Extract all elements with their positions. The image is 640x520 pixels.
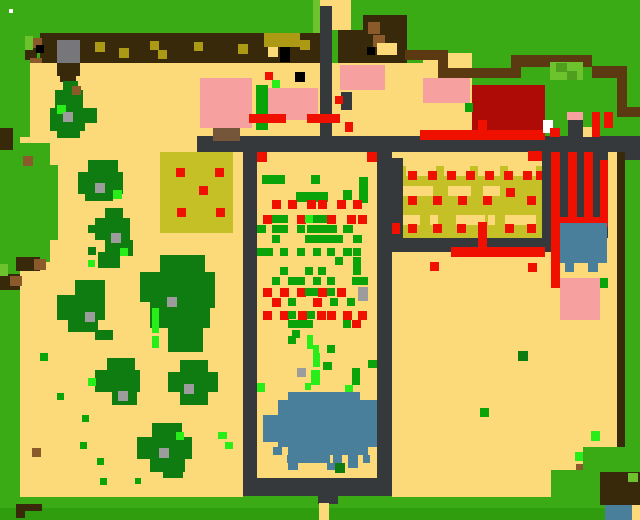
crop (272, 235, 280, 243)
field-dot (215, 168, 224, 177)
trough (560, 223, 607, 263)
sprout (600, 278, 608, 288)
crop (353, 267, 361, 275)
sprout-glow (218, 432, 227, 439)
stone (297, 368, 306, 377)
crop-red (288, 200, 297, 209)
crop-red (352, 320, 361, 328)
crop-red (327, 215, 336, 224)
tree (185, 288, 215, 308)
path-top-tan (331, 0, 351, 30)
brown-col (617, 152, 625, 447)
crop-red (272, 298, 281, 307)
crop (307, 311, 315, 319)
blob-black (367, 47, 375, 55)
grass-light (25, 36, 33, 50)
strip-block (264, 33, 300, 47)
cliff-ledge (36, 45, 44, 53)
grass-light (0, 264, 8, 276)
cliff-ledge (10, 276, 22, 286)
cliff-ledge (34, 259, 46, 270)
building-pink (567, 112, 583, 120)
sprout (100, 478, 107, 485)
crop (305, 235, 343, 243)
tree (168, 326, 203, 352)
red-block (528, 151, 542, 161)
crop (305, 267, 313, 275)
crop (343, 248, 352, 256)
stone (63, 112, 73, 122)
strip-black (280, 47, 290, 62)
stone (111, 233, 121, 243)
sprout-glow (225, 442, 233, 449)
crop-red (343, 311, 352, 320)
fence (448, 68, 515, 78)
crop-red (263, 311, 272, 320)
stone (358, 287, 368, 301)
field-dot (466, 171, 475, 180)
red-dash (307, 114, 340, 123)
field-dot (447, 171, 456, 180)
crop (343, 225, 353, 233)
pond (333, 455, 342, 463)
field-dot (199, 186, 208, 195)
field-row (448, 186, 471, 196)
crop-red (307, 200, 316, 209)
tan-corner (632, 505, 640, 520)
sprout (40, 353, 48, 361)
red-spot (550, 128, 560, 137)
pond (288, 447, 368, 455)
red-spot (265, 72, 273, 80)
sprout (465, 103, 473, 112)
farm-map[interactable] (0, 0, 640, 520)
field (160, 152, 233, 233)
tree (83, 108, 97, 123)
pond (263, 415, 278, 442)
grass-light (313, 0, 320, 33)
crop (288, 320, 313, 328)
fence (627, 107, 640, 117)
building-pink (423, 78, 470, 103)
crop-glow (305, 215, 313, 223)
sprout-glow (305, 383, 311, 390)
sprout (352, 368, 360, 385)
field-dot (216, 208, 225, 217)
crop-red (298, 311, 307, 320)
field-dot (408, 196, 417, 205)
tree-strip (256, 85, 268, 130)
blob-spot (368, 22, 380, 34)
crop (313, 248, 321, 256)
crop (327, 288, 335, 296)
water-corner (605, 505, 632, 520)
crop (280, 267, 288, 275)
red-dash (249, 114, 286, 123)
sprout-glow (272, 80, 280, 88)
crop-red (358, 311, 367, 320)
crop (327, 248, 335, 256)
road (197, 136, 640, 152)
knoll-spot (23, 156, 33, 166)
tree (85, 192, 113, 201)
dirt-spot (32, 448, 41, 457)
crop-red (327, 311, 336, 320)
tree-glow (88, 260, 95, 267)
stone (85, 312, 95, 322)
crop (262, 175, 285, 184)
white-dot (9, 9, 13, 13)
strip-spot (150, 41, 159, 50)
crop (327, 277, 335, 285)
strip-spot (119, 48, 129, 58)
tree (95, 330, 113, 340)
field-dot (433, 224, 442, 233)
red-bar (604, 112, 613, 128)
crop (272, 215, 288, 223)
stone (159, 448, 169, 458)
pen-wall (377, 152, 392, 496)
red-spot (335, 96, 343, 104)
tree (57, 128, 80, 138)
red-stripe (600, 160, 608, 217)
field-row (483, 186, 500, 196)
stone (118, 391, 128, 401)
crop (335, 257, 343, 265)
field-dot (177, 208, 186, 217)
strip-spot (238, 44, 248, 54)
crop (343, 320, 351, 328)
black-spot (295, 72, 305, 82)
sprout-glow (311, 370, 320, 385)
crop (318, 267, 326, 275)
building-pink (560, 278, 600, 320)
crop-red (337, 288, 346, 297)
crop (353, 235, 362, 243)
crop (330, 298, 338, 306)
pond (287, 455, 330, 463)
field-dot (504, 171, 513, 180)
field-dot (433, 196, 442, 205)
crop-red (367, 152, 377, 162)
sprout-glow (313, 353, 320, 367)
crop (288, 298, 296, 306)
pen-wall (243, 478, 392, 496)
crop-red (257, 152, 267, 162)
crop (311, 175, 320, 184)
tree-dot (335, 463, 345, 473)
tree-glow (120, 248, 128, 256)
tree (57, 295, 105, 320)
grass-knoll (48, 165, 58, 240)
crop-red (280, 288, 289, 297)
crop-red (318, 200, 327, 209)
sprout (288, 336, 296, 344)
crop-red (263, 288, 272, 297)
tree-glow (152, 336, 159, 348)
sprout (82, 415, 89, 422)
crop-red (347, 215, 356, 224)
sprout (97, 458, 104, 465)
field-dot (527, 196, 536, 205)
crop-red (272, 200, 281, 209)
crop-red (263, 215, 272, 224)
pond (348, 455, 358, 468)
crop (313, 277, 321, 285)
sprout (368, 360, 377, 368)
tree-glow (152, 308, 159, 333)
grass-step (583, 447, 617, 472)
crop (280, 248, 288, 256)
grass-step (617, 447, 625, 472)
red-bar (592, 112, 600, 137)
strip-block (300, 40, 310, 50)
gate-path (319, 503, 329, 520)
strip-spot (95, 42, 105, 52)
crop (313, 215, 327, 223)
building-pink (340, 65, 385, 90)
dark-block (0, 128, 13, 150)
tan-strip (393, 152, 528, 166)
field-dot (458, 196, 467, 205)
crop (307, 225, 337, 233)
sprout (135, 478, 141, 484)
crop-red (353, 200, 362, 209)
chimney (568, 120, 583, 137)
crop (343, 190, 352, 200)
stone (95, 183, 105, 193)
tree (98, 252, 120, 268)
pond (363, 455, 370, 463)
crop (288, 311, 296, 319)
red-stripe (568, 152, 577, 217)
tan-col (608, 152, 617, 275)
pond (288, 463, 298, 470)
strip-spot (158, 50, 167, 59)
field-dot (392, 223, 400, 234)
doorstep (213, 128, 240, 141)
fence (438, 55, 448, 78)
pond (273, 447, 282, 455)
wall-block (625, 152, 640, 160)
sprout-glow (88, 378, 96, 386)
crop (353, 257, 361, 267)
bush-dark (567, 71, 577, 80)
tree (95, 370, 140, 392)
crop-red (317, 311, 326, 320)
field-dot (485, 171, 494, 180)
strip-spot (194, 42, 203, 51)
crop (353, 248, 361, 256)
field-dot (408, 171, 417, 180)
field-dot (428, 171, 437, 180)
red-band (420, 130, 545, 140)
sprout-glow (313, 345, 319, 353)
crop (257, 225, 266, 233)
sprout (327, 345, 335, 353)
tree-glow (113, 190, 122, 199)
field-dot (506, 188, 515, 197)
stump (57, 40, 80, 63)
crop (257, 248, 273, 256)
pond (288, 392, 360, 400)
blob-tan (377, 43, 397, 55)
fence (511, 55, 521, 78)
field-dot (408, 224, 417, 233)
field-dot (505, 224, 514, 233)
field-dot (457, 224, 466, 233)
barn-door (478, 120, 487, 130)
field-dot (523, 171, 532, 180)
tree-glow (176, 432, 184, 440)
fence (617, 66, 627, 117)
sprout-glow (591, 431, 600, 441)
sprout (323, 362, 332, 370)
red-stripe (584, 152, 593, 217)
crop (272, 277, 280, 285)
crop (347, 298, 355, 306)
red-spot (345, 122, 353, 132)
pond (278, 400, 377, 447)
crop (352, 277, 368, 285)
crop-red (313, 298, 322, 307)
dirt-spot (72, 86, 81, 95)
grass-light (628, 473, 638, 482)
stone (184, 384, 194, 394)
tree (88, 225, 96, 233)
field-row (488, 215, 495, 225)
pen-wall (243, 152, 257, 496)
stone (167, 297, 177, 307)
tree (163, 470, 183, 478)
tree-dot (518, 351, 528, 361)
red-spot (528, 263, 537, 272)
red-band (451, 247, 545, 257)
trough-foot (588, 263, 598, 272)
dock (16, 510, 25, 518)
crop (297, 248, 305, 256)
sprout-glow (257, 383, 265, 392)
bush-dark (556, 63, 567, 72)
crop-red (337, 200, 346, 209)
sprout (480, 408, 489, 417)
field-dot (483, 196, 492, 205)
crop-red (318, 288, 327, 297)
tree (88, 247, 96, 255)
sprout (80, 442, 87, 449)
red-spot (430, 262, 439, 271)
crop-red (358, 215, 367, 224)
field-dot (527, 224, 536, 233)
crop (297, 225, 305, 233)
crop (305, 288, 318, 296)
sprout (57, 393, 64, 400)
building-pink (200, 78, 252, 128)
pond (327, 463, 335, 470)
strip-tan (268, 47, 278, 57)
crop (288, 277, 305, 285)
field-dot (176, 168, 185, 177)
field-row (403, 186, 433, 196)
crop (272, 225, 288, 233)
stump-base (57, 63, 80, 76)
trough-foot (565, 263, 574, 272)
